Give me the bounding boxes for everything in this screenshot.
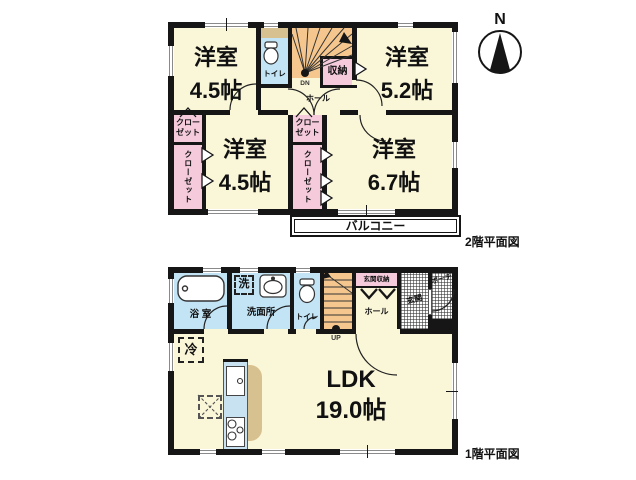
f2-closet-left-bottom-label: クローゼット: [174, 148, 202, 206]
f2-closet-left-top-label: クロー ゼット: [174, 118, 202, 137]
f2-wall: [340, 110, 358, 115]
f1-bath-room: [174, 273, 227, 329]
f2-closet-mid-top-label: クロー ゼット: [293, 118, 322, 137]
compass-circle: [479, 31, 521, 73]
f1-refrigerator-label: 冷: [178, 342, 204, 358]
f1-washroom-label: 洗面所: [232, 307, 290, 318]
f1-ldk-label: LDK 19.0帖: [266, 364, 436, 426]
f2-window: [264, 22, 278, 28]
f1-stairs-area: [324, 273, 352, 329]
f1-hall-label: ホール: [356, 307, 397, 317]
room-size: 4.5帖: [201, 166, 289, 199]
ldk-name: LDK: [266, 364, 436, 395]
f2-window: [452, 142, 458, 168]
compass-label: N: [477, 10, 523, 29]
f1-wall: [174, 329, 204, 334]
f2-wall: [258, 110, 288, 115]
f2-stairs-dn-label: DN: [297, 80, 313, 88]
f1-stairs-up-label: UP: [328, 335, 344, 343]
f1-window: [203, 267, 221, 273]
f1-floor-hatch: [198, 395, 222, 419]
f2-balcony: バルコニー: [290, 215, 461, 237]
f2-balcony-inner: バルコニー: [294, 219, 457, 233]
f2-wall: [386, 110, 452, 115]
f2-wall: [322, 115, 327, 209]
f2-room-br-label: 洋室 6.7帖: [349, 133, 439, 199]
f1-kitchen-stove: [226, 417, 245, 447]
f2-wall: [320, 56, 357, 59]
f2-room-bl-label: 洋室 4.5帖: [201, 133, 289, 199]
f2-wall: [320, 85, 357, 88]
room-name: 洋室: [349, 133, 439, 166]
compass-icon: [477, 26, 523, 78]
f1-window: [296, 267, 310, 273]
f2-toilet-shelf: [261, 28, 288, 38]
f1-toilet-label: トイレ: [294, 312, 320, 321]
f1-measure-tick: [367, 445, 368, 458]
f1-entrance-door: [428, 289, 432, 315]
f2-toilet-label: トイレ: [261, 69, 288, 78]
ldk-size: 19.0帖: [266, 395, 436, 426]
f1-wall: [316, 329, 356, 334]
f2-wall: [288, 28, 292, 88]
f1-window: [240, 267, 258, 273]
floor2-plan: 洋室 4.5帖 洋室 5.2帖 洋室 4.5帖 洋室 6.7帖 トイレ 収納 ホ…: [168, 22, 458, 215]
f2-closet-mid-bottom-label: クローゼット: [293, 148, 322, 206]
closet-line2: ゼット: [174, 128, 202, 138]
f1-kitchen-sink: [226, 366, 245, 396]
f2-wall: [352, 28, 357, 80]
f2-wall: [256, 84, 292, 88]
room-name: 洋室: [201, 133, 289, 166]
f2-measure-tick: [226, 18, 227, 31]
f2-window: [398, 22, 413, 28]
room-name: 洋室: [172, 41, 260, 74]
f1-bath-label: 浴 室: [174, 309, 227, 320]
f2-balcony-label: バルコニー: [346, 219, 406, 233]
f2-hall-label: ホール: [294, 94, 342, 104]
f1-wall: [228, 329, 264, 334]
closet-line2: ゼット: [293, 128, 322, 138]
f1-laundry-label: 洗: [234, 278, 254, 291]
f1-counter-back: [248, 365, 262, 441]
f2-wall: [293, 142, 322, 145]
floor2-caption: 2階平面図: [465, 233, 520, 250]
f1-window: [168, 343, 174, 371]
f1-wall: [288, 329, 296, 334]
floorplan-canvas: N: [0, 0, 636, 480]
room-size: 4.5帖: [172, 74, 260, 107]
f1-wall: [400, 329, 452, 334]
closet-line1: クロー: [293, 118, 322, 128]
f1-measure-tick: [446, 391, 458, 392]
f2-room-tr-label: 洋室 5.2帖: [362, 41, 452, 107]
room-size: 5.2帖: [362, 74, 452, 107]
f1-window: [200, 449, 216, 455]
room-name: 洋室: [362, 41, 452, 74]
f1-entrance-storage-label: 玄関収納: [356, 276, 397, 284]
f1-wall: [227, 273, 232, 329]
f2-room-tl-label: 洋室 4.5帖: [172, 41, 260, 107]
compass-base: [489, 68, 511, 73]
f2-window: [452, 32, 458, 83]
compass-needle: [490, 33, 510, 70]
room-size: 6.7帖: [349, 166, 439, 199]
floor1-plan: 冷: [168, 267, 458, 455]
floor1-caption: 1階平面図: [465, 445, 520, 462]
f1-window: [262, 449, 285, 455]
f2-window: [208, 209, 258, 215]
f1-window: [168, 279, 174, 303]
f1-wall: [320, 273, 324, 329]
closet-line1: クロー: [174, 118, 202, 128]
f2-storage-label: 収納: [323, 66, 352, 78]
